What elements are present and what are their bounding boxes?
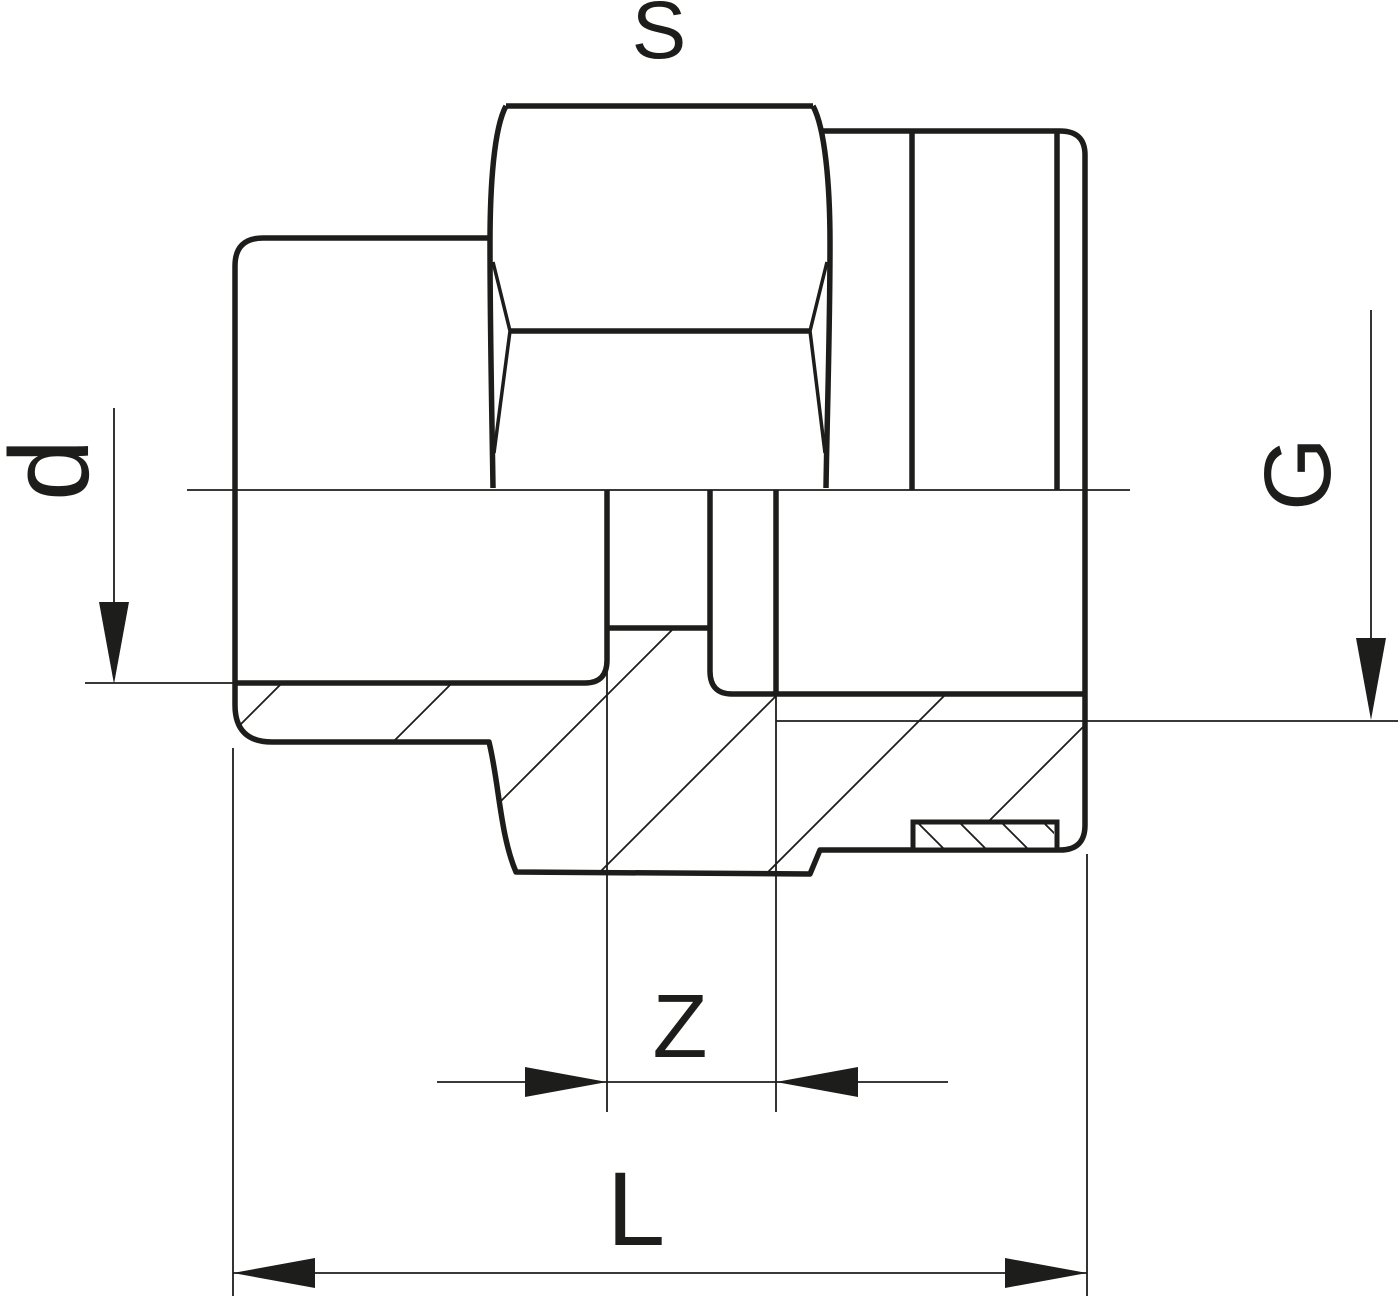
nut-left-facet-edge <box>493 262 510 453</box>
technical-drawing-svg: S d G Z L <box>0 0 1400 1302</box>
label-d: d <box>0 439 112 501</box>
z-arrow-right <box>776 1067 858 1097</box>
technical-drawing-page: S d G Z L <box>0 0 1400 1302</box>
label-z: Z <box>653 977 708 1077</box>
label-g: G <box>1245 437 1351 511</box>
l-arrow-left <box>233 1258 315 1288</box>
body-outline <box>235 131 1085 874</box>
d-arrow <box>99 602 129 684</box>
dimension-g <box>1356 310 1386 720</box>
sleeve-section-strip <box>900 805 1081 860</box>
z-arrow-left <box>525 1067 607 1097</box>
union-nut-outline <box>490 106 830 488</box>
section-hatch-body <box>0 430 1380 1000</box>
g-arrow <box>1356 638 1386 720</box>
l-arrow-right <box>1005 1258 1087 1288</box>
label-l: L <box>607 1151 665 1268</box>
socket-bore-line <box>237 490 607 683</box>
label-s: S <box>632 0 687 76</box>
nut-right-facet-edge <box>810 262 827 453</box>
insert-step-line <box>710 490 1085 694</box>
